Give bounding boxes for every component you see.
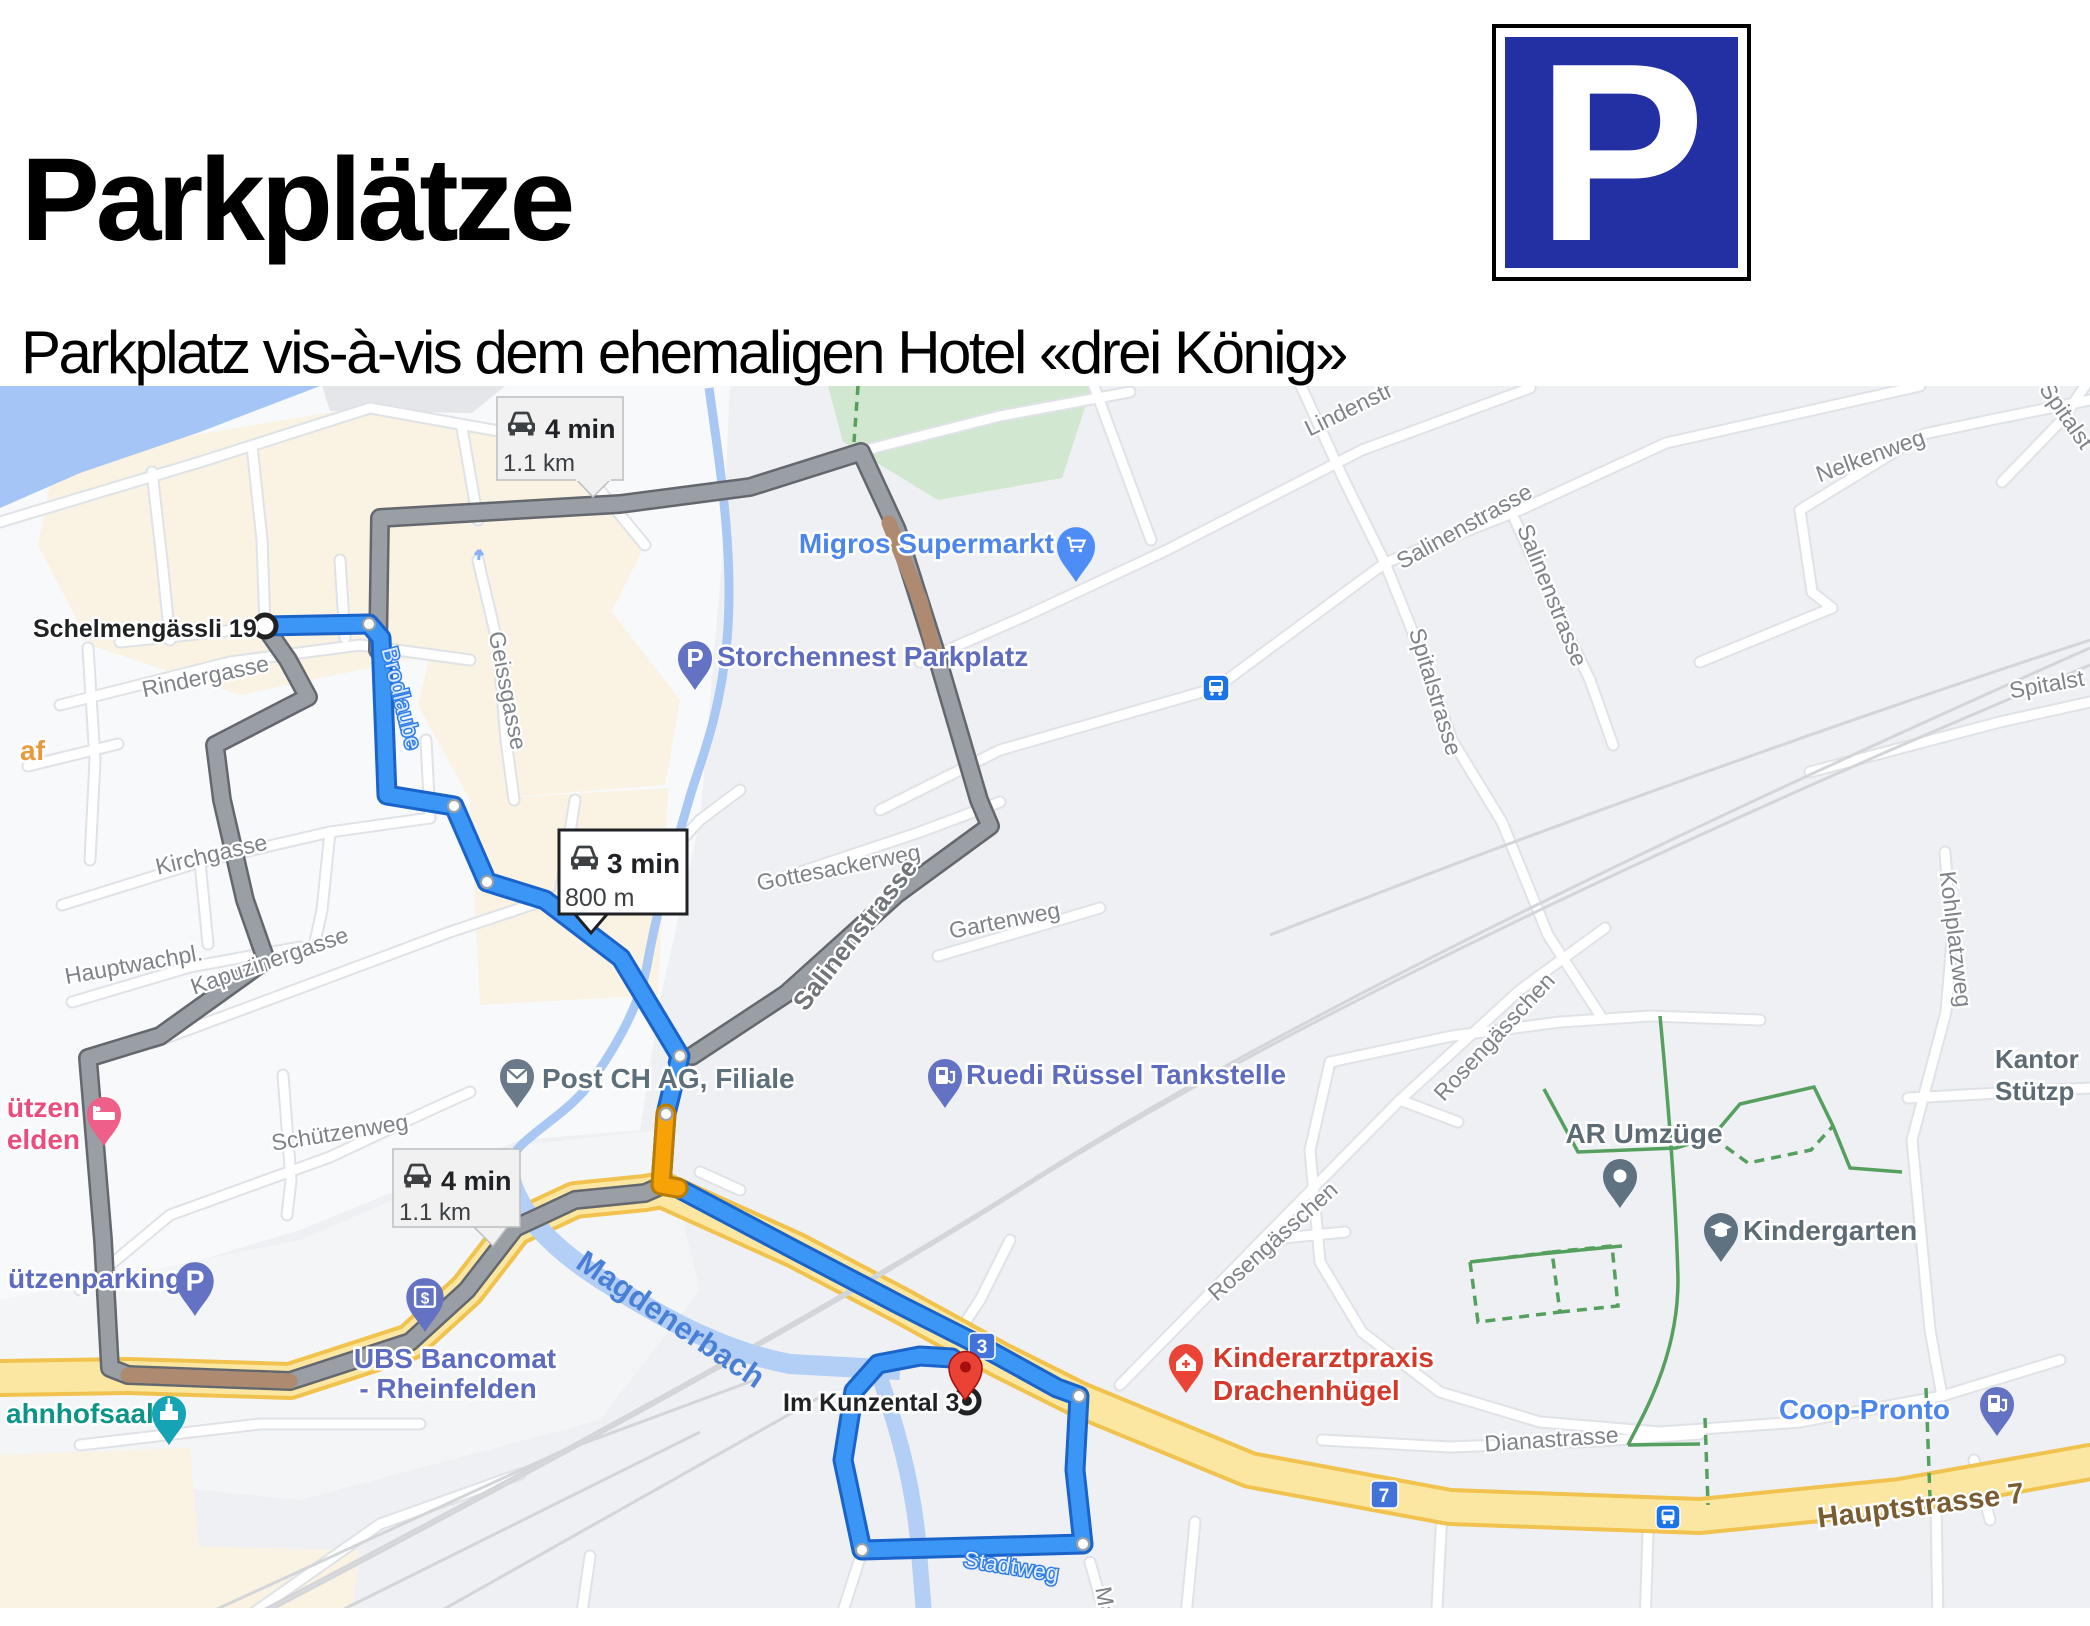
svg-text:1.1 km: 1.1 km [399, 1199, 471, 1226]
svg-text:af: af [20, 735, 46, 766]
svg-text:Post CH AG, Filiale: Post CH AG, Filiale [542, 1063, 795, 1094]
svg-text:Schelmengässli 19: Schelmengässli 19 [33, 615, 257, 643]
svg-text:4 min: 4 min [441, 1166, 512, 1196]
svg-text:ahnhofsaal: ahnhofsaal [6, 1398, 154, 1429]
svg-text:UBS Bancomat: UBS Bancomat [354, 1343, 556, 1374]
svg-text:Coop-Pronto: Coop-Pronto [1779, 1394, 1950, 1425]
svg-text:Stützp: Stützp [1995, 1076, 2074, 1106]
svg-text:Kantor: Kantor [1995, 1044, 2079, 1074]
svg-text:ützen: ützen [7, 1092, 80, 1123]
svg-text:3: 3 [977, 1337, 988, 1358]
svg-text:P: P [1536, 37, 1705, 270]
svg-text:Ruedi Rüssel Tankstelle: Ruedi Rüssel Tankstelle [966, 1059, 1286, 1090]
svg-text:7: 7 [1379, 1486, 1390, 1507]
svg-text:$: $ [421, 1290, 430, 1307]
svg-text:4 min: 4 min [545, 414, 616, 444]
svg-text:3 min: 3 min [607, 848, 680, 879]
svg-text:Im Kunzental 3: Im Kunzental 3 [783, 1389, 959, 1417]
svg-text:ützenparking: ützenparking [8, 1263, 182, 1294]
svg-text:Kindergarten: Kindergarten [1743, 1215, 1917, 1246]
svg-text:Kinderarztpraxis: Kinderarztpraxis [1213, 1342, 1434, 1373]
svg-text:Drachenhügel: Drachenhügel [1213, 1375, 1400, 1406]
svg-text:elden: elden [7, 1124, 80, 1155]
svg-text:P: P [185, 1266, 204, 1298]
svg-text:1.1 km: 1.1 km [503, 450, 575, 477]
svg-text:P: P [686, 643, 703, 673]
svg-text:Migros Supermarkt: Migros Supermarkt [799, 528, 1054, 559]
svg-text:- Rheinfelden: - Rheinfelden [359, 1373, 536, 1404]
svg-text:Ma: Ma [1090, 1585, 1121, 1608]
svg-text:Storchennest Parkplatz: Storchennest Parkplatz [717, 641, 1028, 672]
svg-text:800 m: 800 m [565, 884, 634, 912]
svg-text:AR Umzüge: AR Umzüge [1565, 1118, 1722, 1149]
